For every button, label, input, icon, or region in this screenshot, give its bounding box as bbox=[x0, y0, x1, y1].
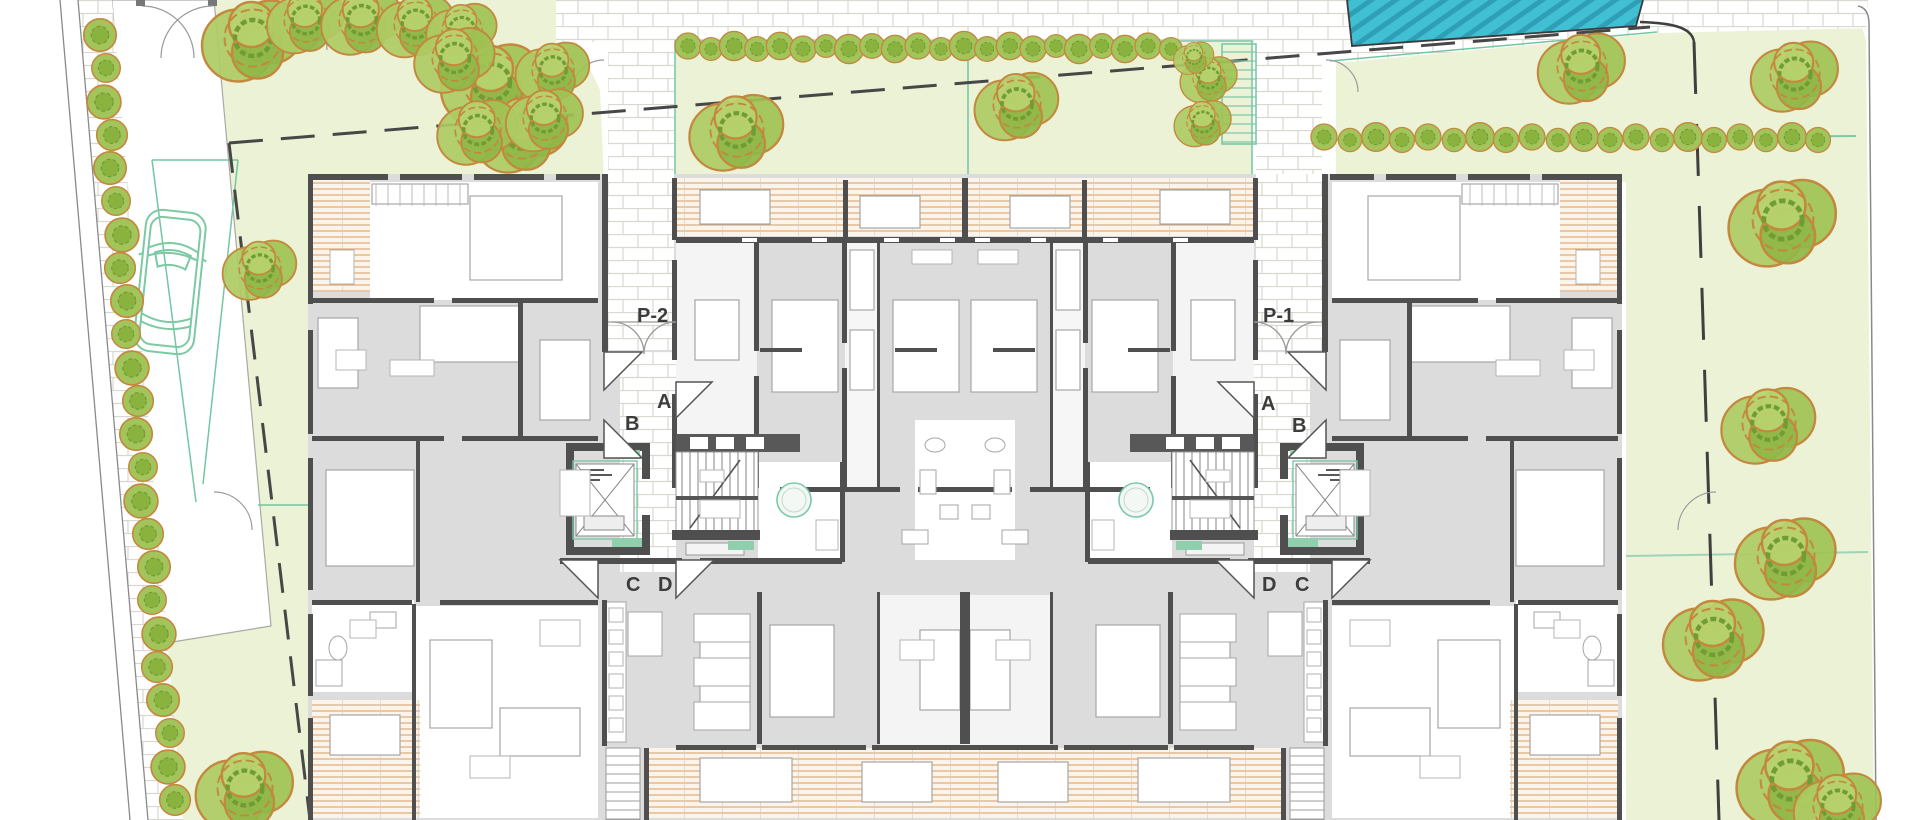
svg-text:P-2: P-2 bbox=[637, 305, 668, 327]
svg-text:A: A bbox=[1261, 393, 1275, 415]
svg-text:A: A bbox=[657, 391, 671, 413]
svg-text:B: B bbox=[625, 413, 639, 435]
svg-text:D: D bbox=[658, 574, 672, 596]
svg-text:B: B bbox=[1292, 415, 1306, 437]
svg-text:C: C bbox=[626, 574, 640, 596]
svg-text:D: D bbox=[1262, 574, 1276, 596]
svg-text:C: C bbox=[1295, 574, 1309, 596]
svg-text:P-1: P-1 bbox=[1263, 305, 1294, 327]
